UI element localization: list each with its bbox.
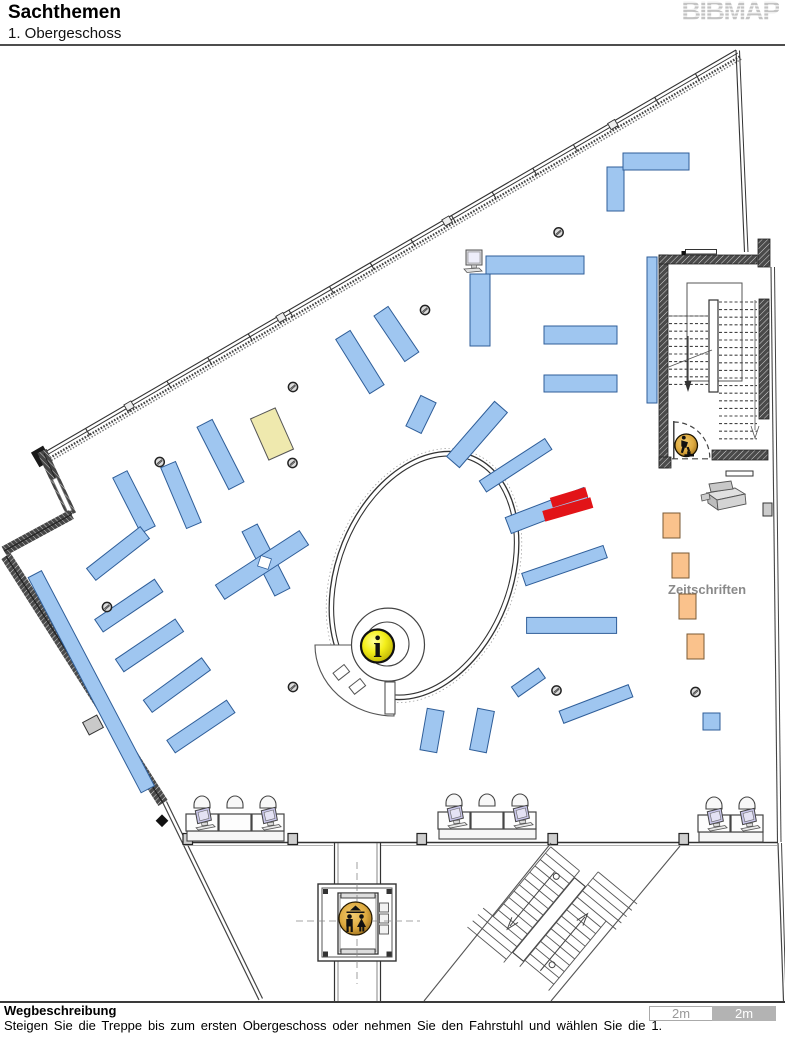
svg-text:i: i — [373, 629, 382, 664]
